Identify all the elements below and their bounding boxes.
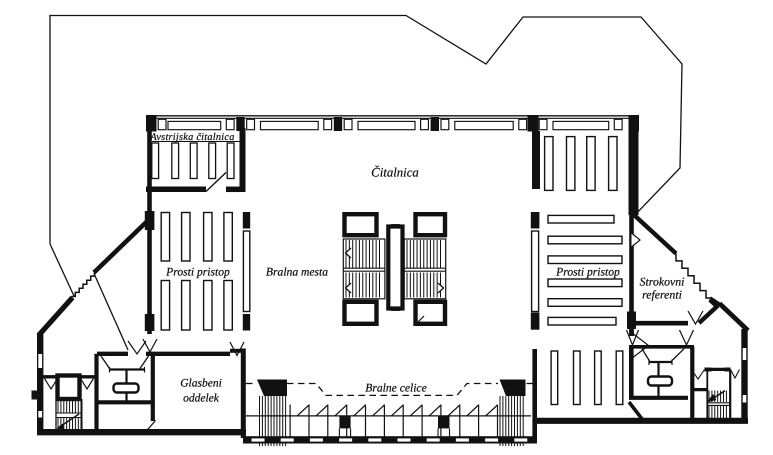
svg-text:referenti: referenti xyxy=(642,288,682,302)
svg-text:Glasbeni: Glasbeni xyxy=(180,378,222,390)
svg-text:Čitalnica: Čitalnica xyxy=(371,166,419,180)
svg-text:Strokovni: Strokovni xyxy=(640,275,685,289)
svg-text:Prosti pristop: Prosti pristop xyxy=(555,266,620,279)
svg-text:Avstrijska čitalnica: Avstrijska čitalnica xyxy=(149,132,234,143)
svg-text:Prosti pristop: Prosti pristop xyxy=(165,266,230,279)
svg-text:oddelek: oddelek xyxy=(183,393,220,405)
svg-text:Bralne celice: Bralne celice xyxy=(365,382,426,395)
svg-text:Bralna mesta: Bralna mesta xyxy=(266,266,328,279)
